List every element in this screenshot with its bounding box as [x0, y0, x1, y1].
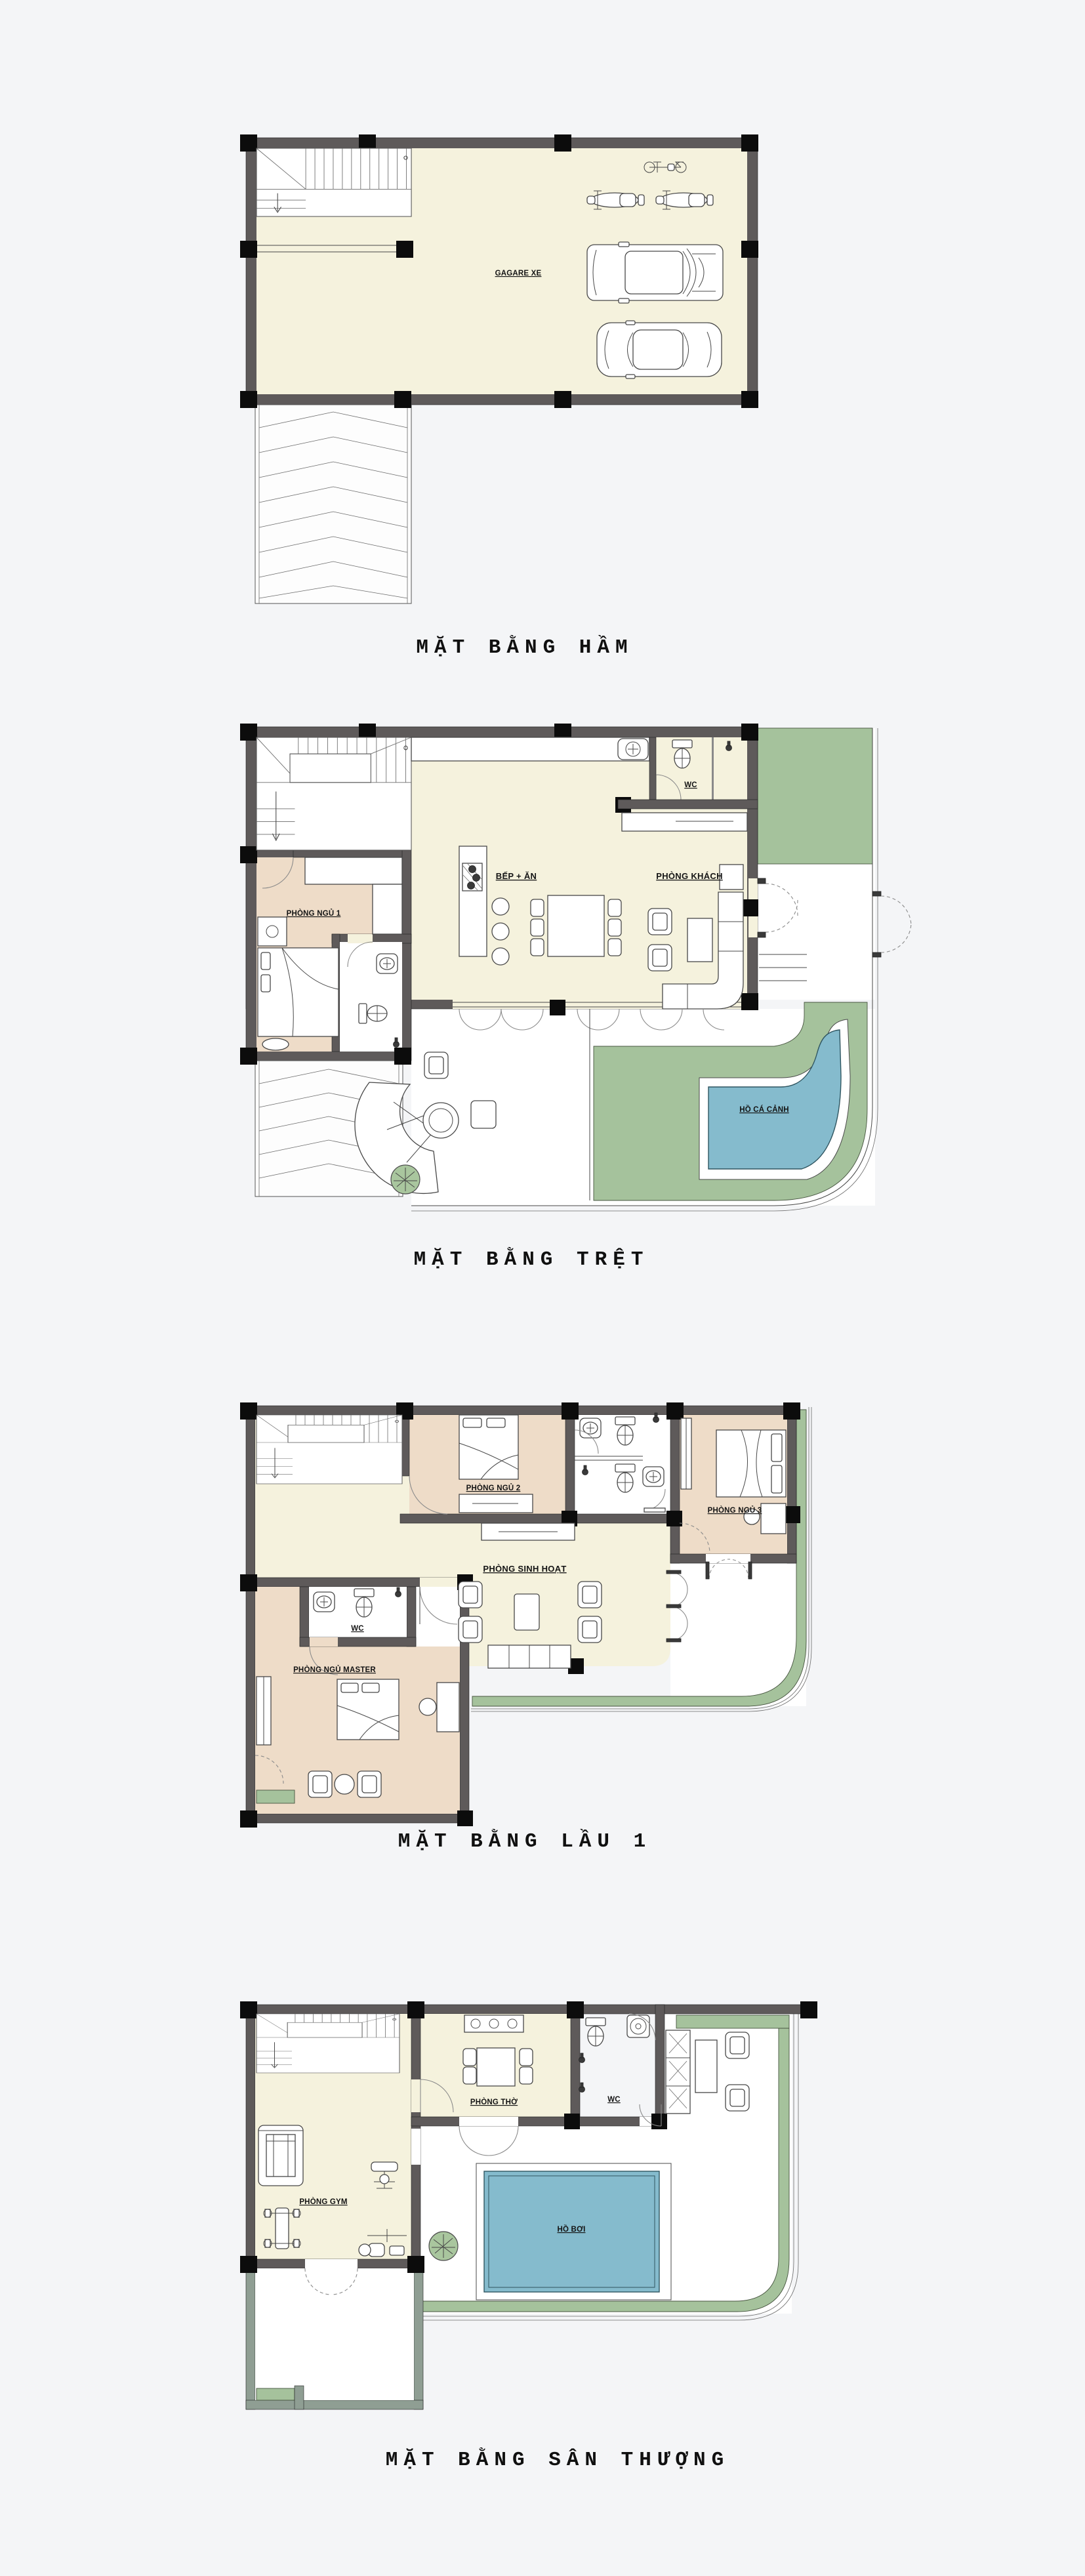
console-cabinet — [622, 813, 747, 831]
sedan-car-icon — [597, 321, 722, 378]
bedroom2-label: PHÒNG NGỦ 2 — [466, 1484, 521, 1492]
roof-wc: WC — [579, 2014, 662, 2126]
basement-plan: GAGARE XE MẶT BẰNG HẦM — [240, 134, 758, 659]
garden-lawn — [758, 728, 872, 864]
kitchen-island — [459, 846, 487, 956]
roof-terrace-plan: PHÒNG THỜ WC HỒ BƠI — [240, 2001, 817, 2472]
roof-title: MẶT BẰNG SÂN THƯỢNG — [386, 2447, 729, 2472]
bedroom3-label: PHÒNG NGỦ 3 — [708, 1506, 762, 1515]
coffee-table — [687, 918, 712, 962]
basement-title: MẶT BẰNG HẦM — [416, 634, 633, 659]
plans-drawing: GAGARE XE MẶT BẰNG HẦM HỒ CÁ CẢNH — [0, 0, 1085, 2576]
ground-stair — [256, 737, 411, 850]
sofa — [666, 2030, 690, 2114]
master-wc-label: WC — [351, 1625, 364, 1633]
coffee-table — [514, 1594, 539, 1630]
bedroom1-label: PHÒNG NGỦ 1 — [287, 909, 341, 918]
first-floor-title: MẶT BẰNG LẦU 1 — [398, 1828, 651, 1853]
family-room-label: PHÒNG SINH HOẠT — [483, 1564, 566, 1574]
worship-label: PHÒNG THỜ — [470, 2098, 518, 2106]
gym-label: PHÒNG GYM — [299, 2198, 347, 2206]
coffee-table — [695, 2040, 717, 2093]
first-floor-stair — [256, 1415, 402, 1484]
dining-table — [548, 895, 604, 956]
ground-floor-plan: HỒ CÁ CẢNH — [240, 724, 911, 1271]
pool-label: HỒ BƠI — [558, 2225, 586, 2234]
entry-gate — [872, 891, 911, 957]
master-label: PHÒNG NGỦ MASTER — [293, 1666, 376, 1674]
garage-label: GAGARE XE — [495, 270, 542, 277]
fish-pond-label: HỒ CÁ CẢNH — [739, 1105, 788, 1114]
ground-wc-label: WC — [684, 781, 697, 789]
kitchen-counter — [411, 737, 649, 761]
ground-title: MẶT BẰNG TRỆT — [414, 1246, 649, 1271]
roof-wc-label: WC — [607, 2096, 621, 2104]
roof-stair — [256, 2014, 399, 2073]
basement-stair — [256, 148, 411, 216]
kitchen-label: BẾP + ĂN — [496, 871, 537, 881]
first-floor-plan: PHÒNG NGỦ 2 PHÒNG NGỦ 3 — [240, 1402, 811, 1853]
suv-car-icon — [587, 242, 723, 303]
altar-table — [464, 2015, 523, 2032]
floor-plan-sheet: GAGARE XE MẶT BẰNG HẦM HỒ CÁ CẢNH — [0, 0, 1085, 2576]
tea-table — [477, 2048, 515, 2086]
living-label: PHÒNG KHÁCH — [656, 871, 723, 881]
